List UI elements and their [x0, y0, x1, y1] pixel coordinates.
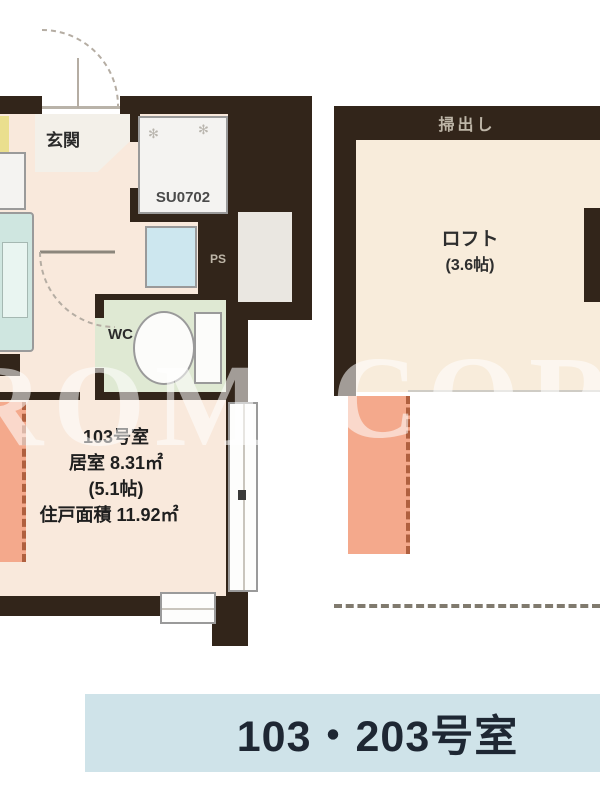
floorplan-canvas: 玄関 PS ✻ ✻ SU0702	[0, 0, 600, 800]
wc-door-arc	[40, 252, 115, 327]
entry-door-arc	[42, 30, 118, 106]
door-swing-overlay	[0, 0, 600, 800]
